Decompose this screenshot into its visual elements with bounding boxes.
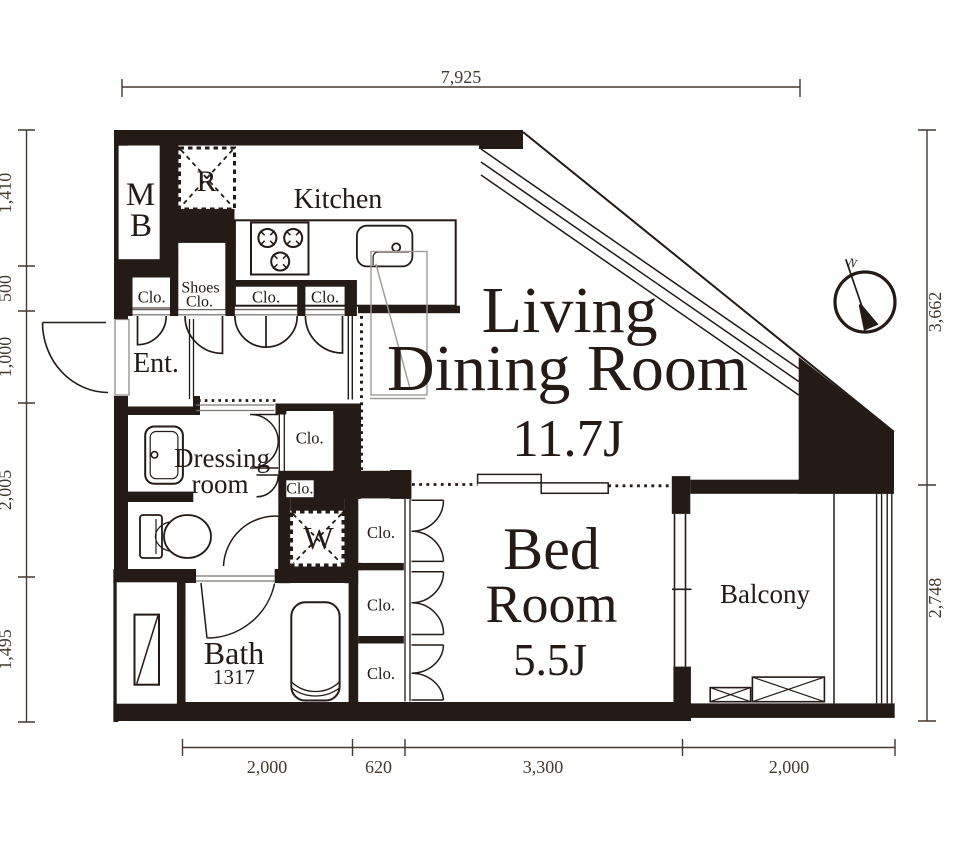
svg-text:11.7J: 11.7J [512,410,623,468]
svg-text:Balcony: Balcony [720,579,810,609]
svg-text:1,000: 1,000 [0,337,15,378]
svg-text:1317: 1317 [213,665,255,689]
svg-text:3,662: 3,662 [925,292,945,333]
svg-text:Ent.: Ent. [133,348,179,379]
svg-text:2,000: 2,000 [769,757,810,777]
svg-text:3,300: 3,300 [523,757,564,777]
svg-text:1,495: 1,495 [0,629,15,670]
svg-text:1,410: 1,410 [0,173,15,214]
svg-text:Clo.: Clo. [367,523,395,542]
svg-text:Clo.: Clo. [186,294,213,311]
svg-text:W: W [303,520,334,556]
svg-text:Room: Room [485,574,617,634]
svg-text:B: B [130,208,152,244]
svg-text:2,748: 2,748 [925,578,945,619]
svg-text:2,000: 2,000 [247,757,288,777]
svg-text:Clo.: Clo. [296,429,324,448]
svg-text:R: R [196,165,216,198]
svg-text:500: 500 [0,275,15,302]
svg-text:5.5J: 5.5J [513,635,587,685]
svg-text:Clo.: Clo. [252,288,280,307]
svg-text:Clo.: Clo. [367,596,395,615]
svg-text:Clo.: Clo. [286,481,313,498]
svg-text:Kitchen: Kitchen [294,184,383,215]
svg-text:room: room [192,469,249,499]
svg-text:7,925: 7,925 [441,67,482,87]
svg-text:Bed: Bed [503,516,600,582]
svg-text:2,005: 2,005 [0,470,15,511]
svg-text:Dining Room: Dining Room [387,332,748,405]
svg-text:Clo.: Clo. [138,288,166,307]
svg-text:620: 620 [365,757,392,777]
svg-text:Clo.: Clo. [311,288,339,307]
svg-text:Clo.: Clo. [367,664,395,683]
